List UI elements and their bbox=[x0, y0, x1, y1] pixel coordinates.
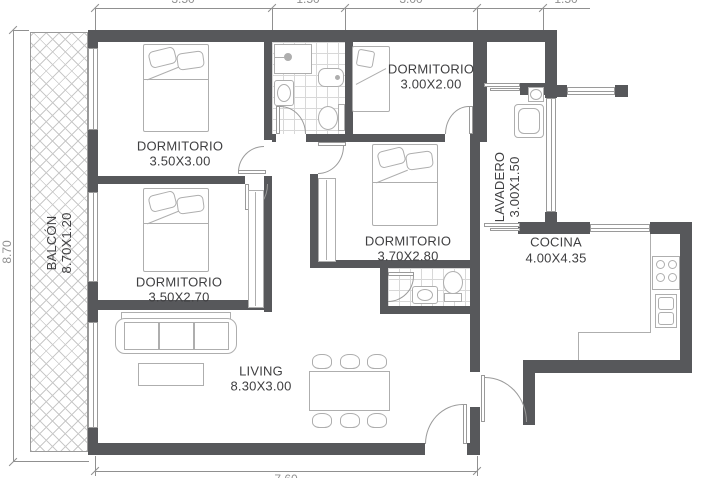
living-name: LIVING bbox=[239, 364, 283, 379]
window-laundry bbox=[546, 98, 556, 212]
dimension-extension bbox=[543, 8, 544, 30]
kitchen-dims: 4.00X4.35 bbox=[525, 251, 586, 266]
bedroom3-dims: 3.00X2.00 bbox=[400, 77, 461, 92]
wall-top bbox=[88, 30, 557, 42]
bed-sheet-line bbox=[143, 223, 209, 224]
bed-sheet-line bbox=[372, 182, 438, 183]
sofa-cushion bbox=[159, 322, 194, 350]
wardrobe-line bbox=[255, 192, 256, 306]
laundry-dims: 3.00X1.50 bbox=[507, 152, 522, 222]
wardrobe bbox=[318, 178, 336, 262]
window-kitchen bbox=[590, 224, 650, 232]
dining-chair bbox=[312, 413, 332, 428]
toilet-bowl bbox=[318, 106, 338, 130]
dim-top-2: 1.50 bbox=[296, 0, 319, 6]
shower-area bbox=[274, 44, 312, 74]
sliding-door-laundry-north bbox=[490, 88, 520, 91]
sliding-door-laundry-south bbox=[484, 223, 520, 227]
stove-burner bbox=[656, 273, 665, 282]
wall-kitchen-east bbox=[680, 222, 692, 373]
laundry-tub-bowl bbox=[518, 108, 540, 134]
bidet-drain bbox=[335, 75, 340, 80]
washbasin-bowl bbox=[277, 84, 291, 102]
wall-laundry-west bbox=[473, 42, 487, 142]
stove-burner bbox=[668, 273, 677, 282]
living-dims: 8.30X3.00 bbox=[230, 379, 291, 394]
dim-top-3: 3.00 bbox=[399, 0, 422, 6]
door-arc-bedroom1 bbox=[238, 146, 264, 172]
toilet-tank bbox=[338, 104, 345, 131]
sofa-cushion bbox=[124, 322, 159, 350]
door-arc-bedroom3 bbox=[445, 106, 469, 134]
wall-bedroom4-west bbox=[310, 174, 318, 268]
balcony-label: BALCÓN 8.70X1.20 bbox=[44, 212, 74, 273]
dining-chair bbox=[340, 413, 360, 428]
water-heater-top bbox=[530, 89, 542, 100]
dimension-extension bbox=[95, 8, 96, 30]
door-arc-bedroom4 bbox=[318, 146, 344, 174]
wardrobe-line bbox=[326, 180, 327, 260]
bedroom2-dims: 3.50X2.70 bbox=[148, 290, 209, 305]
bidet bbox=[318, 68, 344, 87]
wall-bath2-south bbox=[380, 306, 480, 314]
dim-top-4: 1.50 bbox=[554, 0, 577, 6]
toilet-bowl bbox=[443, 271, 463, 294]
coffee-table bbox=[138, 363, 204, 386]
wall-bath1-south bbox=[272, 134, 276, 142]
dimension-extension bbox=[477, 8, 478, 30]
dim-bottom: 7.60 bbox=[274, 473, 297, 478]
bed-sheet-line bbox=[143, 79, 209, 80]
pillow bbox=[356, 49, 376, 69]
counter-edge bbox=[578, 332, 579, 360]
wall-kitchen-west bbox=[470, 268, 480, 372]
dining-chair bbox=[340, 354, 360, 369]
toilet-tank bbox=[444, 293, 462, 302]
counter-edge bbox=[650, 234, 651, 332]
room-name: BALCÓN bbox=[44, 212, 59, 273]
washbasin-bowl bbox=[417, 289, 433, 301]
dining-chair bbox=[367, 413, 387, 428]
wall-bedroom1-east bbox=[264, 42, 272, 140]
bedroom1-dims: 3.50X3.00 bbox=[149, 154, 210, 169]
sink-bowl bbox=[658, 297, 674, 310]
bedroom1-name: DORMITORIO bbox=[137, 139, 223, 154]
laundry-name: LAVADERO bbox=[492, 152, 507, 222]
bedroom4-name: DORMITORIO bbox=[365, 234, 451, 249]
laundry-label: LAVADERO 3.00X1.50 bbox=[492, 152, 522, 222]
dim-top-1: 3.50 bbox=[171, 0, 194, 6]
dimension-extension bbox=[272, 8, 273, 30]
wall-kitchen-north bbox=[518, 222, 590, 234]
door-arc-kitchen bbox=[485, 377, 527, 422]
dimension-extension bbox=[95, 456, 96, 476]
wardrobe bbox=[248, 190, 264, 308]
wall-bedroom1-south bbox=[88, 176, 245, 184]
stove-burner bbox=[656, 260, 665, 269]
bedroom4-dims: 3.70X2.80 bbox=[377, 249, 438, 264]
dimension-extension bbox=[13, 30, 29, 31]
bedroom3-name: DORMITORIO bbox=[388, 62, 474, 77]
dim-left: 8.70 bbox=[0, 240, 14, 263]
door-arc-entrance bbox=[425, 404, 463, 444]
dimension-extension bbox=[345, 8, 346, 30]
dimension-extension bbox=[477, 456, 478, 476]
wall-laundry-east bbox=[545, 42, 557, 98]
wall-bottom bbox=[88, 443, 425, 455]
door-leaf-entrance bbox=[463, 404, 467, 444]
sink-bowl bbox=[658, 312, 674, 325]
counter-edge bbox=[578, 332, 651, 333]
kitchen-name: COCINA bbox=[530, 235, 582, 250]
stove-burner bbox=[668, 260, 677, 269]
wall-kitchen-south bbox=[523, 360, 692, 373]
bedroom2-name: DORMITORIO bbox=[136, 275, 222, 290]
wall-bath1-south bbox=[306, 134, 445, 142]
window-service bbox=[567, 87, 615, 95]
wall-living-east bbox=[470, 407, 480, 455]
dining-chair bbox=[367, 354, 387, 369]
shower-head-icon bbox=[284, 53, 292, 61]
sliding-door-laundry-south bbox=[490, 228, 520, 231]
wall-service-rail bbox=[615, 85, 628, 97]
wall-bath2-west bbox=[380, 268, 388, 306]
window-living bbox=[88, 322, 98, 428]
wall-east-inner bbox=[470, 134, 480, 260]
window-bedroom1 bbox=[88, 48, 98, 130]
dining-chair bbox=[312, 354, 332, 369]
sliding-door-laundry-north bbox=[484, 83, 520, 87]
wall-service-rail bbox=[557, 85, 567, 97]
sofa-cushion bbox=[194, 322, 229, 350]
dimension-extension bbox=[13, 461, 89, 462]
door-leaf-bedroom3 bbox=[469, 106, 473, 134]
window-bedroom2 bbox=[88, 192, 98, 282]
dining-table bbox=[309, 371, 390, 411]
floor-plan: 3.50 1.50 3.00 1.50 8.70 7.60 BALCÓN 8.7… bbox=[0, 0, 720, 478]
room-dims: 8.70X1.20 bbox=[59, 212, 74, 273]
